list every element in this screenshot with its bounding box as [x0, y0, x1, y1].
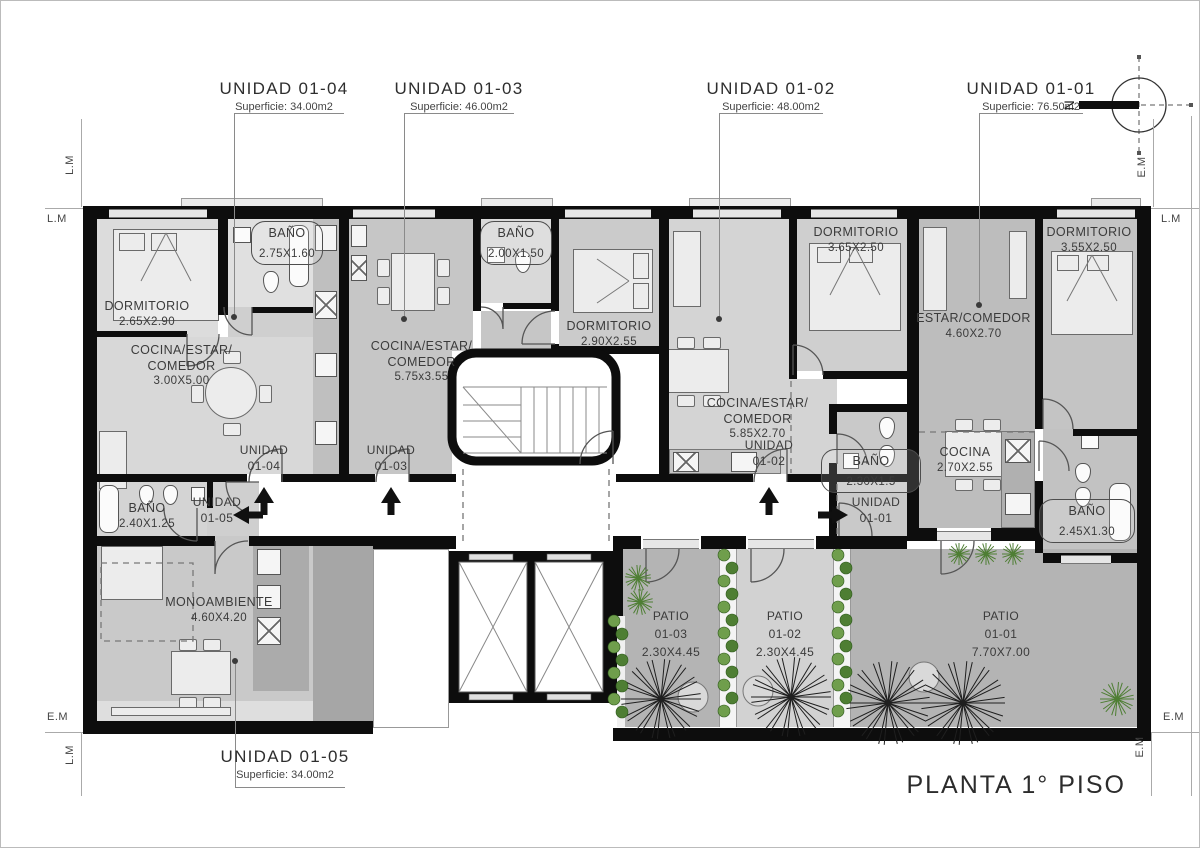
boundary-line [45, 208, 83, 209]
room-name: BAÑO [497, 226, 534, 240]
lobby [456, 461, 616, 556]
chair [955, 479, 973, 491]
window-facade-4 [693, 209, 781, 218]
below-elevator [449, 703, 617, 728]
leader-dot-u02 [716, 316, 722, 322]
room-name: COCINA/ESTAR/ [109, 343, 254, 359]
entrance-line: 01-05 [190, 511, 244, 527]
chair [259, 385, 272, 403]
boundary-label-br-h: E.M [1163, 711, 1184, 723]
unit-title-text: UNIDAD 01-03 [384, 79, 534, 99]
boundary-label-br-v: E.M [1134, 734, 1146, 760]
chair [703, 337, 721, 349]
room-dims: 2.30X1.5 [846, 476, 895, 488]
entrance-label-u03: UNIDAD 01-03 [364, 443, 418, 474]
boundary-label-tl-h: L.M [47, 213, 67, 225]
pillow [1087, 255, 1109, 271]
plan-title: PLANTA 1° PISO [856, 771, 1126, 800]
property-line-right [1191, 116, 1192, 796]
entrance-line: 01-02 [742, 454, 796, 470]
wall-u05-mono-top-a [97, 536, 215, 546]
north-label: N [1061, 95, 1077, 115]
unit-area-text: Superficie: 76.50m2 [956, 101, 1106, 113]
room-name: BAÑO [268, 226, 305, 240]
boundary-line [1151, 732, 1152, 796]
unit-title-01-03: UNIDAD 01-03 Superficie: 46.00m2 [384, 79, 534, 113]
unit-title-01-02: UNIDAD 01-02 Superficie: 48.00m2 [696, 79, 846, 113]
unit-title-text: UNIDAD 01-05 [210, 747, 360, 767]
window-u01-bath [1061, 555, 1111, 564]
chair [677, 337, 695, 349]
unit-title-text: UNIDAD 01-02 [696, 79, 846, 99]
entrance-label-u05: UNIDAD 01-05 [190, 495, 244, 526]
room-name: MONOAMBIENTE [127, 595, 311, 611]
room-dims: 4.60X4.20 [127, 611, 311, 625]
leader-dot-u03 [401, 316, 407, 322]
entrance-line: 01-04 [237, 459, 291, 475]
room-name: DORMITORIO [799, 225, 913, 241]
wall-exterior-bottom-patios [613, 728, 1151, 741]
wall-u02-bath-left-a [829, 404, 837, 434]
label-u01-dormitorio: DORMITORIO 3.55X2.50 [1037, 225, 1141, 255]
patio-id: 01-02 [733, 625, 837, 643]
label-u02-bano: BAÑO 2.30X1.5 [821, 449, 921, 493]
elevator-block [449, 551, 617, 703]
unit-area-text: Superficie: 34.00m2 [209, 101, 359, 113]
chair [377, 287, 390, 305]
chair [983, 419, 1001, 431]
chair [223, 423, 241, 436]
wall-u01-dorm-bottom [1073, 429, 1137, 436]
bath-pill: BAÑO 2.75X1.60 [251, 221, 323, 265]
chair [437, 259, 450, 277]
pillow [119, 233, 145, 251]
wall-u05-mono-top-b [249, 536, 373, 546]
unit-title-01-04: UNIDAD 01-04 Superficie: 34.00m2 [209, 79, 359, 113]
wall-corridor-top-4 [616, 474, 753, 482]
table-u02 [667, 349, 729, 393]
patio-label-01-03: PATIO 01-03 2.30X4.45 [619, 607, 723, 661]
cabinet-u03 [351, 225, 367, 247]
patio-dims: 2.30X4.45 [733, 643, 837, 661]
entrance-label-u02: UNIDAD 01-02 [742, 438, 796, 469]
boundary-label-tr-v: E.M [1136, 154, 1148, 180]
entrance-line: 01-03 [364, 459, 418, 475]
stove-u03 [351, 255, 367, 281]
entrance-line: UNIDAD [237, 443, 291, 459]
entrance-line: 01-01 [847, 511, 905, 527]
boundary-label-tl-v: L.M [64, 152, 76, 178]
sink-u04 [315, 353, 337, 377]
patio-name: PATIO [941, 607, 1061, 625]
wall-patio03-left [613, 536, 623, 616]
boundary-line [1151, 208, 1200, 209]
boundary-line [1153, 119, 1154, 207]
sofa-u01 [923, 227, 947, 311]
fridge-u05 [257, 549, 281, 575]
room-dims: 2.75X1.60 [259, 248, 315, 260]
floor-plan-canvas: UNIDAD 01-04 Superficie: 34.00m2 UNIDAD … [0, 0, 1200, 848]
boundary-label-bl-v: L.M [64, 742, 76, 768]
entrance-line: UNIDAD [364, 443, 418, 459]
wall-u04-bath-bottom [252, 307, 313, 313]
room-dims: 4.60X2.70 [901, 327, 1046, 341]
label-u04-bano: BAÑO 2.75X1.60 [241, 221, 333, 265]
label-u03-dormitorio: DORMITORIO 2.90X2.55 [551, 319, 667, 349]
label-u01-bano: BAÑO 2.45X1.30 [1039, 499, 1135, 543]
room-name: BAÑO [1068, 504, 1105, 518]
unit-area-text: Superficie: 46.00m2 [384, 101, 534, 113]
label-u02-living: COCINA/ESTAR/ COMEDOR 5.85X2.70 [685, 396, 830, 442]
tv-unit-u01 [1009, 231, 1027, 299]
unit-title-01-01: UNIDAD 01-01 Superficie: 76.50m2 [956, 79, 1106, 113]
boundary-line [1151, 732, 1200, 733]
unit-title-01-05: UNIDAD 01-05 Superficie: 34.00m2 [210, 747, 360, 781]
leader-line-u01 [979, 113, 980, 305]
label-u03-bano: BAÑO 2.00X1.50 [469, 221, 563, 265]
wall-u03-hall-dorm-b [551, 344, 559, 421]
patio-id: 01-03 [619, 625, 723, 643]
window-facade-5 [811, 209, 897, 218]
leader-line-u04 [234, 113, 235, 317]
sofa-u05 [101, 546, 163, 600]
table-u03 [391, 253, 435, 311]
room-dims: 5.75x3.55 [349, 370, 494, 384]
leader-underline-u04 [234, 113, 344, 114]
unit-area-text: Superficie: 34.00m2 [210, 769, 360, 781]
leader-underline-u02 [719, 113, 823, 114]
label-u01-cocina: COCINA 2.70X2.55 [913, 445, 1017, 475]
room-name: COMEDOR [685, 412, 830, 428]
room-dims: 2.00X1.50 [488, 248, 544, 260]
room-name: COCINA [913, 445, 1017, 461]
wall-corridor-top-1 [97, 474, 247, 482]
patio-dims: 2.30X4.45 [619, 643, 723, 661]
label-u04-living: COCINA/ESTAR/ COMEDOR 3.00X5.00 [109, 343, 254, 389]
leader-underline-u03 [404, 113, 514, 114]
chair [437, 287, 450, 305]
wall-u02-bath-top [837, 404, 907, 412]
room-dims: 3.65X2.50 [799, 241, 913, 255]
stove-u04 [315, 291, 337, 319]
room-name: COCINA/ESTAR/ [685, 396, 830, 412]
bench-balcony [111, 707, 231, 716]
room-name: DORMITORIO [1037, 225, 1141, 241]
wall-patio-top-3 [816, 536, 907, 549]
wall-u02-living-dorm [789, 219, 797, 379]
room-u05-right-column [313, 536, 373, 721]
wall-u02-dorm-bottom [823, 371, 907, 379]
chair [179, 639, 197, 651]
patio-id: 01-01 [941, 625, 1061, 643]
wall-u04-dorm-bath [218, 219, 228, 315]
window-facade-2 [353, 209, 435, 218]
chair [983, 479, 1001, 491]
bath-pill: BAÑO 2.45X1.30 [1039, 499, 1135, 543]
wall-u04-u03 [339, 206, 349, 482]
leader-dot-u05 [232, 658, 238, 664]
room-name: COMEDOR [349, 355, 494, 371]
leader-dot-u01 [976, 302, 982, 308]
unit-area-text: Superficie: 48.00m2 [696, 101, 846, 113]
entrance-line: UNIDAD [742, 438, 796, 454]
sofa-u02 [673, 231, 701, 307]
wall-patio-top-2 [701, 536, 746, 549]
wall-u04-dorm-bottom [97, 331, 187, 337]
pillow [633, 283, 649, 309]
boundary-line [45, 732, 83, 733]
table-u05 [171, 651, 231, 695]
pillow [151, 233, 177, 251]
boundary-line [81, 732, 82, 796]
boundary-line [81, 119, 82, 207]
wall-corridor-top-2 [281, 474, 375, 482]
room-name: COMEDOR [109, 359, 254, 375]
room-name: BAÑO [852, 454, 889, 468]
stove-u02 [673, 452, 699, 472]
chair [955, 419, 973, 431]
boundary-label-bl-h: E.M [47, 711, 68, 723]
wall-exterior-bottom-left [83, 721, 373, 734]
counter-u04 [315, 421, 337, 445]
room-name: BAÑO [101, 501, 193, 517]
label-u05-bano: BAÑO 2.40X1.25 [101, 501, 193, 531]
label-u01-estar: ESTAR/COMEDOR 4.60X2.70 [901, 311, 1046, 341]
wall-u01-cocina-bottom-b [991, 528, 1043, 541]
entrance-line: UNIDAD [847, 495, 905, 511]
window-facade-3 [565, 209, 651, 218]
entrance-label-u04: UNIDAD 01-04 [237, 443, 291, 474]
room-dims: 3.55X2.50 [1037, 241, 1141, 255]
patio-name: PATIO [619, 607, 723, 625]
bath-pill: BAÑO 2.30X1.5 [821, 449, 921, 493]
wall-exterior-left [83, 206, 97, 734]
leader-line-u02 [719, 113, 720, 319]
label-u02-dormitorio: DORMITORIO 3.65X2.50 [799, 225, 913, 255]
label-u04-dormitorio: DORMITORIO 2.65X2.90 [91, 299, 203, 329]
window-facade-6 [1057, 209, 1135, 218]
leader-line-u03 [404, 113, 405, 319]
unit-title-text: UNIDAD 01-04 [209, 79, 359, 99]
room-dims: 2.90X2.55 [551, 335, 667, 349]
leader-dot-u04 [231, 314, 237, 320]
nook-core-right [616, 353, 659, 482]
wall-exterior-right [1137, 206, 1151, 741]
room-name: COCINA/ESTAR/ [349, 339, 494, 355]
window-u01-cocina [937, 531, 991, 541]
patio-label-01-02: PATIO 01-02 2.30X4.45 [733, 607, 837, 661]
patio-label-01-01: PATIO 01-01 7.70X7.00 [941, 607, 1061, 661]
window-patio03-door [643, 539, 699, 549]
patio-name: PATIO [733, 607, 837, 625]
unit-title-text: UNIDAD 01-01 [956, 79, 1106, 99]
entrance-line: UNIDAD [190, 495, 244, 511]
room-dims: 2.45X1.30 [1059, 526, 1115, 538]
wall-void-top [373, 536, 456, 549]
chair [203, 639, 221, 651]
pillow [633, 253, 649, 279]
room-dims: 3.00X5.00 [109, 374, 254, 388]
room-dims: 2.65X2.90 [91, 315, 203, 329]
entrance-label-u01: UNIDAD 01-01 [847, 495, 905, 526]
window-patio02-door [748, 539, 814, 549]
bath-pill: BAÑO 2.00X1.50 [480, 221, 552, 265]
void-lightwell [373, 549, 449, 728]
room-name: DORMITORIO [551, 319, 667, 335]
room-dims: 2.40X1.25 [101, 517, 193, 531]
chair [377, 259, 390, 277]
leader-underline-u05 [235, 787, 345, 788]
wall-corridor-top-3 [409, 474, 456, 482]
boundary-label-tr-h: L.M [1161, 213, 1181, 225]
sink-u01 [1005, 493, 1031, 515]
label-u03-living: COCINA/ESTAR/ COMEDOR 5.75x3.55 [349, 339, 494, 385]
window-facade-1 [109, 209, 207, 218]
patio-dims: 7.70X7.00 [941, 643, 1061, 661]
room-name: DORMITORIO [91, 299, 203, 315]
room-dims: 2.70X2.55 [913, 461, 1017, 475]
pillow [1057, 255, 1079, 271]
label-u05-monoambiente: MONOAMBIENTE 4.60X4.20 [127, 595, 311, 625]
room-name: ESTAR/COMEDOR [901, 311, 1046, 327]
wall-u01-cocina-bottom-a [907, 528, 937, 541]
